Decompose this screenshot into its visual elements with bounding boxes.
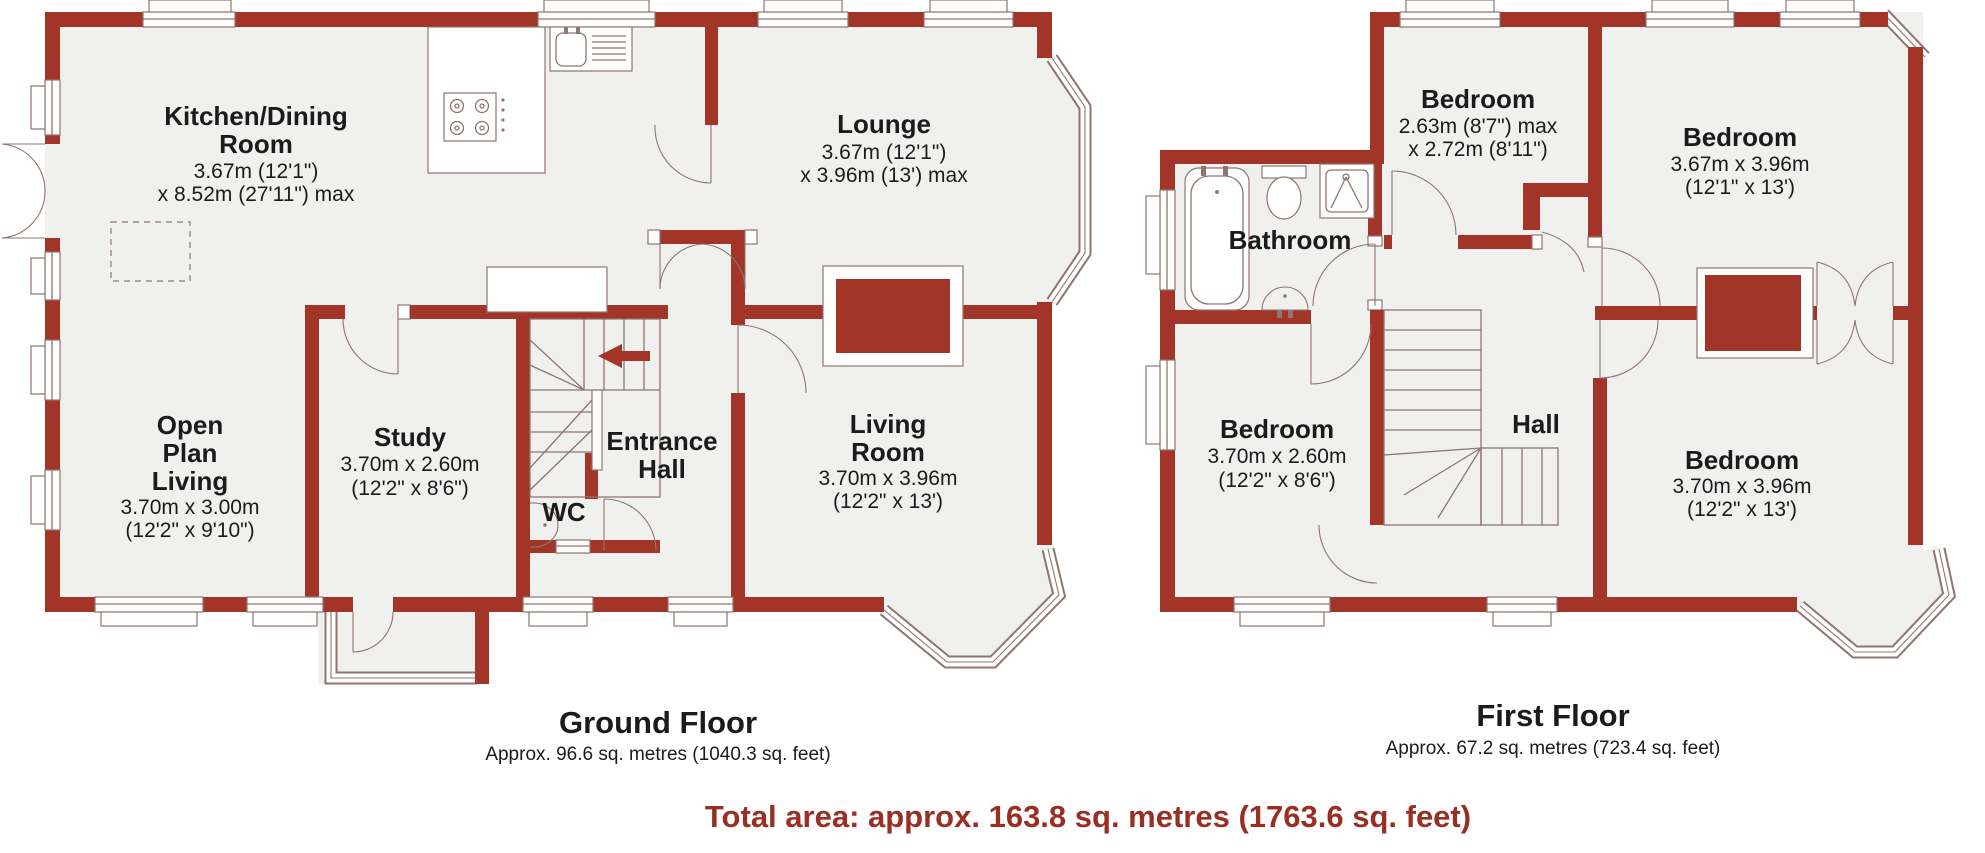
french-doors-icon: [2, 144, 45, 238]
total-area-text: Total area: approx. 163.8 sq. metres (17…: [705, 799, 1471, 834]
label-bedroom3-dim-1: 3.70m x 2.60m: [1208, 445, 1347, 468]
label-living-name-1: Living: [850, 409, 927, 439]
label-bedroom2-dim-2: (12'1" x 13'): [1685, 176, 1795, 199]
shower-icon: [1320, 164, 1374, 218]
label-bedroom4-dim-1: 3.70m x 3.96m: [1673, 475, 1812, 498]
label-bedroom4-name: Bedroom: [1685, 445, 1799, 475]
label-study-name: Study: [374, 422, 447, 452]
label-openplan-dim-1: 3.70m x 3.00m: [121, 496, 260, 519]
first-caption: First Floor Approx. 67.2 sq. metres (723…: [1386, 698, 1721, 759]
label-lounge-dim-1: 3.67m (12'1"): [822, 141, 947, 164]
label-bedroom1-dim-2: x 2.72m (8'11"): [1408, 138, 1547, 161]
stairs-recess: [487, 267, 607, 312]
label-bedroom1-name: Bedroom: [1421, 84, 1535, 114]
label-bedroom2-name: Bedroom: [1683, 122, 1797, 152]
label-openplan-name-3: Living: [152, 466, 229, 496]
label-bedroom3-name: Bedroom: [1220, 414, 1334, 444]
label-wc: WC: [542, 497, 586, 527]
ground-floor-title: Ground Floor: [559, 705, 757, 740]
label-lounge-name: Lounge: [837, 109, 931, 139]
floor-plan-first: Bedroom 2.63m (8'7") max x 2.72m (8'11")…: [1146, 0, 1951, 759]
label-kitchen-dim-2: x 8.52m (27'11") max: [158, 183, 355, 206]
label-entrance-hall-2: Hall: [638, 454, 686, 484]
label-study-dim-2: (12'2" x 8'6"): [351, 477, 468, 500]
hob-icon: [444, 93, 505, 141]
floor-plan-ground: Kitchen/Dining Room 3.67m (12'1") x 8.52…: [2, 0, 1088, 765]
floorplan-canvas: Kitchen/Dining Room 3.67m (12'1") x 8.52…: [0, 0, 1985, 848]
label-bedroom2-dim-1: 3.67m x 3.96m: [1671, 153, 1810, 176]
label-openplan-dim-2: (12'2" x 9'10"): [125, 519, 254, 542]
label-living-dim-1: 3.70m x 3.96m: [819, 467, 958, 490]
kitchen-sink-icon: [550, 27, 632, 71]
ground-floor-subtitle: Approx. 96.6 sq. metres (1040.3 sq. feet…: [485, 744, 830, 765]
label-living-name-2: Room: [851, 437, 925, 467]
first-floor-title: First Floor: [1476, 698, 1629, 733]
label-openplan-name-1: Open: [157, 410, 223, 440]
first-floor-subtitle: Approx. 67.2 sq. metres (723.4 sq. feet): [1386, 738, 1721, 759]
label-study-dim-1: 3.70m x 2.60m: [341, 453, 480, 476]
label-kitchen-dim-1: 3.67m (12'1"): [194, 160, 319, 183]
label-hall: Hall: [1512, 409, 1560, 439]
label-entrance-hall-1: Entrance: [606, 426, 717, 456]
label-lounge-dim-2: x 3.96m (13') max: [800, 164, 968, 187]
label-bedroom4-dim-2: (12'2" x 13'): [1687, 498, 1797, 521]
first-room-fills: [1160, 12, 1951, 656]
label-living-dim-2: (12'2" x 13'): [833, 490, 943, 513]
ground-caption: Ground Floor Approx. 96.6 sq. metres (10…: [485, 705, 830, 765]
label-bedroom1-dim-1: 2.63m (8'7") max: [1399, 115, 1558, 138]
label-kitchen-name-2: Room: [219, 129, 293, 159]
label-openplan-name-2: Plan: [163, 438, 218, 468]
label-bathroom: Bathroom: [1229, 225, 1352, 255]
chimney-icon: [1697, 268, 1813, 358]
label-kitchen-name-1: Kitchen/Dining: [164, 101, 347, 131]
fireplace-icon: [823, 266, 963, 366]
label-bedroom3-dim-2: (12'2" x 8'6"): [1218, 469, 1335, 492]
floorplan-page: Kitchen/Dining Room 3.67m (12'1") x 8.52…: [0, 0, 1985, 848]
wall-post: [398, 305, 410, 319]
